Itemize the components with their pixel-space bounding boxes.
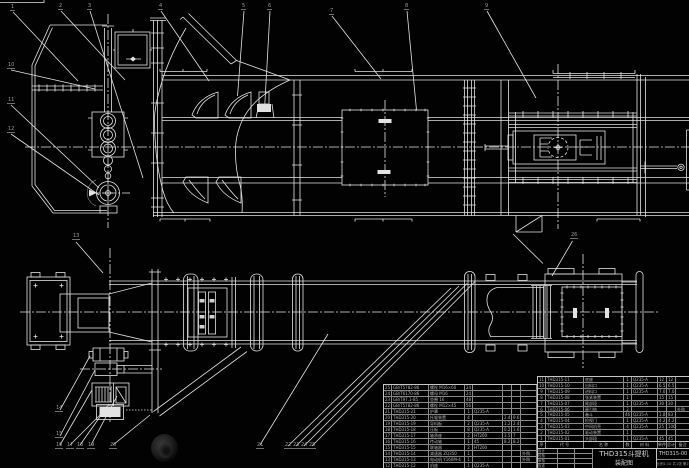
bom-cell: 12 bbox=[384, 463, 392, 468]
leader-label: 12 bbox=[7, 127, 15, 133]
leader-label: 2 bbox=[58, 4, 63, 10]
product-name: THD315斗提机 bbox=[593, 449, 656, 459]
frame-corner bbox=[0, 0, 44, 3]
leader-label: 4 bbox=[158, 4, 163, 10]
title-block-code: THD315-00 比例1:10 共1张 第1张 bbox=[657, 449, 689, 468]
leader-label: 26 bbox=[570, 233, 578, 239]
leader-label: 15 bbox=[55, 432, 63, 438]
bom-table-right: 11THD315-11底座1Q235-A121210THD315-10出料口1Q… bbox=[537, 376, 689, 443]
leader-label: 10 bbox=[7, 63, 15, 69]
leader-label: 21 bbox=[256, 443, 264, 449]
title-block: 设计校核审核批准 THD315斗提机 装配图 THD315-00 比例1:10 … bbox=[537, 448, 689, 468]
bom-cell bbox=[521, 463, 537, 468]
leader-label: 9 bbox=[484, 4, 489, 10]
bom-cell: Q235-A bbox=[473, 463, 503, 468]
leader-label: 8 bbox=[404, 4, 409, 10]
watermark-blob bbox=[151, 434, 178, 462]
leader-label: 18 bbox=[76, 443, 84, 449]
doc-type: 装配图 bbox=[593, 459, 656, 468]
leader-lines bbox=[11, 11, 573, 446]
cad-canvas: 1234567891011121314151617181920212223242… bbox=[0, 0, 689, 468]
bom-cell: 机座 bbox=[429, 463, 465, 468]
leader-label: 16 bbox=[55, 443, 63, 449]
leader-label: 20 bbox=[109, 443, 117, 449]
leader-label: 3 bbox=[87, 4, 92, 10]
bom-table-left: 25GB/T5782-86螺栓 M16×602424GB/T6170-86螺母 … bbox=[383, 384, 538, 468]
leader-label: 17 bbox=[66, 443, 74, 449]
title-block-product: THD315斗提机 装配图 bbox=[593, 449, 657, 468]
bom-cell bbox=[503, 463, 512, 468]
sheet-info: 比例1:10 共1张 第1张 bbox=[657, 460, 689, 468]
title-block-cell: 批准 bbox=[538, 464, 558, 468]
leader-label: 14 bbox=[55, 406, 63, 412]
leader-label: 19 bbox=[87, 443, 95, 449]
leader-label: 1 bbox=[10, 5, 15, 11]
drawing-number: THD315-00 bbox=[657, 449, 689, 460]
leader-label: 5 bbox=[241, 4, 246, 10]
leader-label: 7 bbox=[329, 9, 334, 15]
bom-cell: 1 bbox=[465, 463, 473, 468]
title-block-sign-grid: 设计校核审核批准 bbox=[538, 449, 593, 468]
leader-label: 13 bbox=[72, 234, 80, 240]
leader-label: 25 bbox=[308, 443, 316, 449]
leader-label: 6 bbox=[267, 4, 272, 10]
leader-label: 11 bbox=[7, 98, 15, 104]
elevation-view bbox=[32, 14, 689, 233]
title-block-cell bbox=[575, 464, 593, 468]
bom-cell: THD315-12 bbox=[392, 463, 429, 468]
title-block-cell bbox=[558, 464, 575, 468]
bom-cell bbox=[512, 463, 521, 468]
